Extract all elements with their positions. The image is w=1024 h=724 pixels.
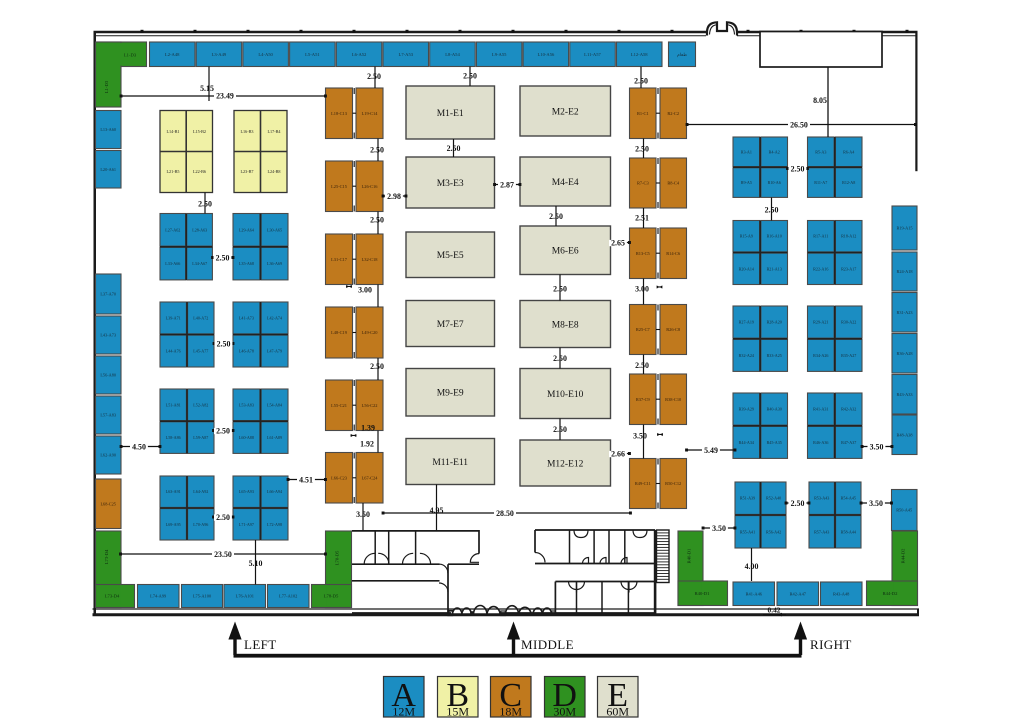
svg-text:R42-A32: R42-A32	[841, 407, 856, 412]
svg-text:L73-D4: L73-D4	[105, 594, 120, 599]
svg-text:L41-A73: L41-A73	[239, 315, 254, 320]
svg-text:R49-C11: R49-C11	[635, 481, 651, 486]
svg-text:R40-D1: R40-D1	[695, 591, 711, 596]
svg-text:5.49: 5.49	[704, 446, 718, 455]
svg-text:L10-A56: L10-A56	[537, 52, 555, 57]
svg-text:L57-A83: L57-A83	[100, 413, 116, 418]
svg-text:L51-A81: L51-A81	[166, 402, 181, 407]
svg-text:R55-A41: R55-A41	[740, 529, 755, 534]
svg-text:R14-C6: R14-C6	[666, 251, 681, 256]
svg-text:R1-C1: R1-C1	[637, 111, 649, 116]
svg-text:0.42: 0.42	[768, 605, 781, 614]
svg-text:R35-A27: R35-A27	[841, 353, 856, 358]
svg-text:L47-A79: L47-A79	[267, 349, 282, 354]
svg-text:R26-C8: R26-C8	[666, 327, 681, 332]
svg-text:R36-A28: R36-A28	[897, 351, 913, 356]
svg-text:R28-A20: R28-A20	[767, 320, 782, 325]
svg-text:L49-C20: L49-C20	[362, 330, 379, 335]
svg-text:L31-C17: L31-C17	[331, 257, 348, 262]
svg-text:L52-A82: L52-A82	[193, 402, 208, 407]
svg-text:2.66: 2.66	[611, 449, 625, 458]
svg-text:R7-C3: R7-C3	[637, 181, 650, 186]
svg-text:L64-A92: L64-A92	[193, 489, 208, 494]
svg-text:R31-A23: R31-A23	[897, 310, 913, 315]
svg-text:R54-A45: R54-A45	[841, 496, 856, 501]
svg-text:MIDDLE: MIDDLE	[521, 637, 574, 652]
svg-text:L69-A95: L69-A95	[166, 522, 181, 527]
svg-text:3.50: 3.50	[870, 442, 884, 451]
svg-text:L4-A50: L4-A50	[258, 52, 273, 57]
svg-text:2.50: 2.50	[217, 339, 231, 348]
svg-text:R50-A45: R50-A45	[896, 508, 912, 513]
svg-text:23.50: 23.50	[214, 550, 232, 559]
svg-text:M10-E10: M10-E10	[547, 390, 584, 400]
svg-text:L73-D4: L73-D4	[104, 549, 109, 564]
svg-text:L6-A52: L6-A52	[352, 52, 367, 57]
svg-text:L37-A70: L37-A70	[100, 292, 116, 297]
svg-text:2.50: 2.50	[370, 146, 384, 155]
svg-text:L13-A60: L13-A60	[100, 127, 116, 132]
svg-text:M2-E2: M2-E2	[552, 107, 579, 117]
svg-text:2.50: 2.50	[216, 426, 230, 435]
svg-text:R24-A18: R24-A18	[897, 269, 913, 274]
svg-text:M6-E6: M6-E6	[552, 247, 579, 257]
svg-text:L53-A83: L53-A83	[239, 402, 254, 407]
svg-text:2.50: 2.50	[367, 72, 381, 81]
svg-text:L39-A71: L39-A71	[166, 315, 181, 320]
svg-text:R46-A36: R46-A36	[813, 440, 828, 445]
svg-text:R30-A22: R30-A22	[841, 320, 856, 325]
svg-text:L63-A91: L63-A91	[166, 489, 181, 494]
svg-text:M4-E4: M4-E4	[552, 178, 579, 188]
svg-text:L54-A84: L54-A84	[267, 402, 282, 407]
svg-text:R37-C9: R37-C9	[636, 397, 651, 402]
svg-text:L11-A57: L11-A57	[584, 52, 601, 57]
svg-text:2.98: 2.98	[387, 192, 401, 201]
svg-text:4.50: 4.50	[132, 442, 146, 451]
svg-text:2.50: 2.50	[216, 253, 230, 262]
svg-text:3.50: 3.50	[869, 499, 883, 508]
svg-text:L7-A53: L7-A53	[399, 52, 414, 57]
svg-text:L26-C16: L26-C16	[362, 184, 379, 189]
svg-text:L29-A64: L29-A64	[239, 227, 254, 232]
svg-text:L3-A49: L3-A49	[212, 52, 227, 57]
svg-text:L78-D5: L78-D5	[324, 594, 339, 599]
svg-text:L62-A90: L62-A90	[100, 453, 116, 458]
svg-text:L14-B1: L14-B1	[166, 129, 179, 134]
svg-text:R19-A15: R19-A15	[897, 226, 913, 231]
svg-text:R2-C2: R2-C2	[667, 111, 679, 116]
svg-text:R33-A25: R33-A25	[767, 353, 782, 358]
svg-text:L78-D5: L78-D5	[335, 550, 340, 565]
svg-text:R8-C4: R8-C4	[667, 181, 680, 186]
svg-text:L8-A54: L8-A54	[445, 52, 460, 57]
svg-text:L40-A72: L40-A72	[193, 315, 208, 320]
svg-text:R9-A5: R9-A5	[741, 180, 752, 185]
svg-text:R12-A8: R12-A8	[842, 180, 855, 185]
svg-text:L15-B2: L15-B2	[193, 129, 206, 134]
svg-text:L5-A51: L5-A51	[305, 52, 320, 57]
svg-text:L72-A98: L72-A98	[267, 522, 282, 527]
svg-text:L30-A65: L30-A65	[267, 227, 282, 232]
svg-text:3.50: 3.50	[633, 432, 647, 441]
svg-text:R3-A1: R3-A1	[741, 149, 752, 154]
svg-text:L17-B4: L17-B4	[267, 129, 281, 134]
svg-text:L74-A99: L74-A99	[150, 594, 167, 599]
svg-text:R52-A40: R52-A40	[766, 496, 781, 501]
svg-text:R15-A9: R15-A9	[740, 234, 753, 239]
svg-text:L56-A80: L56-A80	[100, 373, 116, 378]
svg-text:M1-E1: M1-E1	[437, 109, 464, 119]
svg-text:2.65: 2.65	[611, 238, 625, 247]
svg-text:L36-A69: L36-A69	[267, 261, 282, 266]
svg-text:R10-A6: R10-A6	[768, 180, 781, 185]
svg-text:R41-A31: R41-A31	[813, 407, 828, 412]
svg-text:R11-A7: R11-A7	[814, 180, 827, 185]
svg-text:3.00: 3.00	[635, 285, 649, 294]
svg-text:L77-A102: L77-A102	[279, 594, 297, 599]
svg-text:12M: 12M	[392, 705, 415, 719]
svg-text:R43-A48: R43-A48	[833, 591, 850, 596]
svg-text:L45-A77: L45-A77	[193, 349, 208, 354]
svg-text:R6-A4: R6-A4	[843, 149, 854, 154]
svg-text:M8-E8: M8-E8	[552, 320, 579, 330]
svg-text:R13-C5: R13-C5	[636, 251, 651, 256]
svg-text:R48-A38: R48-A38	[897, 432, 913, 437]
svg-text:R44-D2: R44-D2	[901, 548, 906, 564]
svg-text:2.51: 2.51	[635, 214, 649, 223]
svg-text:R20-A14: R20-A14	[739, 266, 754, 271]
svg-text:L66-A94: L66-A94	[267, 489, 282, 494]
svg-text:L65-A93: L65-A93	[239, 489, 254, 494]
svg-text:L24-B8: L24-B8	[267, 169, 280, 174]
svg-text:R34-A26: R34-A26	[813, 353, 828, 358]
svg-text:L19-C14: L19-C14	[362, 111, 379, 116]
svg-text:R53-A43: R53-A43	[814, 496, 829, 501]
svg-text:26.50: 26.50	[790, 120, 808, 129]
svg-text:R56-A42: R56-A42	[766, 529, 781, 534]
svg-text:L60-A88: L60-A88	[239, 435, 254, 440]
svg-text:L9-A55: L9-A55	[492, 52, 507, 57]
svg-text:2.50: 2.50	[791, 164, 805, 173]
svg-text:L71-A97: L71-A97	[239, 522, 254, 527]
svg-text:M7-E7: M7-E7	[437, 320, 464, 330]
svg-text:R42-A47: R42-A47	[790, 591, 807, 596]
svg-text:L32-C18: L32-C18	[362, 257, 379, 262]
svg-text:L20-A61: L20-A61	[100, 167, 116, 172]
svg-text:R29-A21: R29-A21	[813, 320, 828, 325]
svg-text:R40-A30: R40-A30	[767, 407, 782, 412]
svg-text:2.50: 2.50	[635, 361, 649, 370]
svg-text:M3-E3: M3-E3	[437, 179, 464, 189]
svg-text:30M: 30M	[553, 705, 576, 719]
svg-text:R44-A34: R44-A34	[739, 440, 754, 445]
svg-text:2.50: 2.50	[216, 513, 230, 522]
svg-text:2.50: 2.50	[370, 216, 384, 225]
svg-text:L1-D3: L1-D3	[124, 53, 137, 58]
svg-text:M11-E11: M11-E11	[432, 458, 468, 468]
svg-text:L42-A74: L42-A74	[267, 315, 282, 320]
svg-text:R16-A10: R16-A10	[767, 234, 782, 239]
svg-text:L55-C21: L55-C21	[331, 403, 347, 408]
svg-text:2.50: 2.50	[370, 362, 384, 371]
svg-text:2.87: 2.87	[500, 180, 514, 189]
svg-text:L22-B6: L22-B6	[193, 169, 206, 174]
svg-text:R38-C10: R38-C10	[665, 397, 682, 402]
svg-text:L28-A63: L28-A63	[192, 227, 207, 232]
svg-text:60M: 60M	[606, 705, 629, 719]
svg-text:23.49: 23.49	[216, 92, 234, 101]
svg-text:R21-A13: R21-A13	[767, 266, 782, 271]
svg-text:L75-A100: L75-A100	[193, 594, 212, 599]
svg-text:R22-A16: R22-A16	[813, 266, 828, 271]
svg-text:R27-A19: R27-A19	[739, 320, 754, 325]
svg-text:L59-A87: L59-A87	[193, 435, 208, 440]
svg-text:LEFT: LEFT	[244, 637, 277, 652]
svg-text:R5-A3: R5-A3	[815, 149, 826, 154]
svg-text:L66-C23: L66-C23	[331, 475, 348, 480]
svg-text:L48-C19: L48-C19	[331, 330, 348, 335]
svg-text:L68-C25: L68-C25	[100, 501, 116, 506]
svg-text:L27-A62: L27-A62	[165, 227, 180, 232]
svg-text:R23-A17: R23-A17	[841, 266, 856, 271]
svg-text:3.00: 3.00	[358, 286, 372, 295]
svg-text:3.50: 3.50	[712, 524, 726, 533]
svg-text:L70-A96: L70-A96	[193, 522, 208, 527]
svg-text:L61-A89: L61-A89	[267, 435, 282, 440]
svg-text:L46-A78: L46-A78	[239, 349, 254, 354]
svg-text:L12-A58: L12-A58	[631, 52, 649, 57]
svg-text:R25-C7: R25-C7	[636, 327, 651, 332]
svg-text:L67-C24: L67-C24	[362, 475, 379, 480]
svg-text:R39-A29: R39-A29	[739, 407, 754, 412]
svg-text:2.50: 2.50	[635, 145, 649, 154]
svg-text:L44-A76: L44-A76	[166, 349, 181, 354]
svg-text:R57-A43: R57-A43	[814, 529, 829, 534]
svg-text:R32-A24: R32-A24	[739, 353, 754, 358]
svg-text:R17-A11: R17-A11	[813, 234, 828, 239]
svg-text:R45-A35: R45-A35	[767, 440, 782, 445]
svg-text:2.50: 2.50	[791, 499, 805, 508]
svg-text:M5-E5: M5-E5	[437, 251, 464, 261]
svg-text:1.92: 1.92	[360, 440, 374, 449]
svg-text:R18-A12: R18-A12	[841, 234, 856, 239]
svg-text:L43-A73: L43-A73	[100, 333, 116, 338]
svg-text:L33-A66: L33-A66	[165, 261, 180, 266]
svg-text:R50-C12: R50-C12	[665, 481, 681, 486]
svg-text:18M: 18M	[499, 705, 522, 719]
svg-text:5.15: 5.15	[200, 84, 214, 93]
svg-text:L25-C15: L25-C15	[331, 184, 348, 189]
svg-text:R43-A33: R43-A33	[897, 392, 913, 397]
svg-text:R51-A39: R51-A39	[740, 496, 755, 501]
svg-text:R47-A37: R47-A37	[841, 440, 856, 445]
svg-text:R58-A44: R58-A44	[841, 529, 856, 534]
svg-text:L35-A68: L35-A68	[239, 261, 254, 266]
svg-text:L23-B7: L23-B7	[240, 169, 253, 174]
svg-text:R41-A46: R41-A46	[746, 591, 763, 596]
svg-text:L1-D3: L1-D3	[104, 80, 109, 93]
svg-text:L34-A67: L34-A67	[192, 261, 207, 266]
svg-text:1.39: 1.39	[361, 424, 375, 433]
svg-text:15M: 15M	[446, 705, 469, 719]
svg-text:L56-C22: L56-C22	[362, 403, 378, 408]
svg-text:R44-D2: R44-D2	[883, 591, 899, 596]
svg-text:L2-A48: L2-A48	[165, 52, 180, 57]
svg-text:M12-E12: M12-E12	[547, 459, 584, 469]
svg-text:4.51: 4.51	[299, 475, 313, 484]
svg-text:8.05: 8.05	[813, 96, 827, 105]
svg-text:28.50: 28.50	[496, 509, 514, 518]
svg-text:L58-A86: L58-A86	[166, 435, 181, 440]
svg-text:RIGHT: RIGHT	[810, 637, 852, 652]
svg-text:R4-A2: R4-A2	[769, 149, 780, 154]
svg-text:M9-E9: M9-E9	[437, 389, 464, 399]
svg-text:L76-A101: L76-A101	[236, 594, 254, 599]
svg-text:L16-B3: L16-B3	[240, 129, 253, 134]
svg-text:L18-C13: L18-C13	[331, 111, 348, 116]
svg-text:L21-B5: L21-B5	[166, 169, 179, 174]
svg-text:R40-D1: R40-D1	[687, 548, 692, 564]
